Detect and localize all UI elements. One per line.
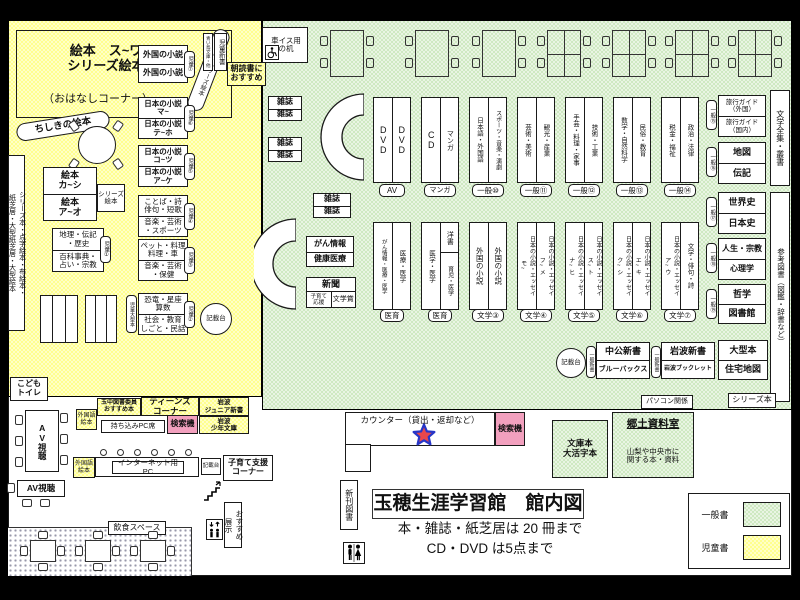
kamishibai-strip-shelf: シリーズ本・点字絵本・布絵本・ 紙芝居・大型紙芝居・大型絵本 xyxy=(8,155,25,331)
shinbun-label: 新聞 xyxy=(307,278,355,292)
shelf-tag: 文学⑥ xyxy=(616,309,648,322)
stool[interactable] xyxy=(100,449,107,456)
shelf-cell: 恐竜・星座 算数 xyxy=(139,294,187,314)
shelf-cell: 音楽・芸術 ・スポーツ xyxy=(139,216,187,236)
shelf-col: 数学・自然科学 xyxy=(614,98,632,182)
foreign-picture-books-shelf: 外国語 絵本 xyxy=(73,457,95,478)
internet-pc-label: インターネット用PC xyxy=(112,461,184,474)
ippan16-tag: 一般⑯ xyxy=(706,147,717,177)
jido1-tag: 児童① xyxy=(100,236,111,263)
shelf-col: 民俗・教育 xyxy=(632,98,651,182)
search-terminal[interactable]: 検索機 xyxy=(495,412,525,446)
iwanami-shinsho-shelf: 岩波新書 岩波ブックレット xyxy=(661,342,715,379)
osusume-display-shelf: おすすめ 展示 xyxy=(224,502,242,548)
ehon-shelf: 絵本 カ~シ 絵本 ア~オ xyxy=(43,167,97,221)
shelf-cell: 人生・宗教 xyxy=(719,239,765,259)
chiri-shelf: 地理・伝記 ・歴史 百科事典・ 占い・宗教 xyxy=(52,228,104,272)
stool[interactable] xyxy=(134,449,141,456)
reading-table xyxy=(738,30,772,77)
asadoku-osusume-shelf: 朝読書に おすすめ xyxy=(227,62,266,86)
eating-table xyxy=(85,540,111,562)
shelf-col: 日本の小説・エッセイ モ~ xyxy=(518,223,536,309)
foreign-picture-books-shelf: 外国語 絵本 xyxy=(76,409,97,430)
magazine-label: 雑誌 xyxy=(269,97,301,109)
legend-children-label: 児童書 xyxy=(697,541,733,555)
kids-round-table xyxy=(78,126,116,164)
jido5-shelf: 日本の小説 コ~ツ 日本の小説 ア~ケ xyxy=(138,145,188,187)
bungaku-zenshu-shelf: 文学全集・叢書 xyxy=(770,90,790,186)
chair[interactable] xyxy=(93,531,103,539)
jido3-shelf: ペット・料理 料理・車 音楽・芸術 ・保健 xyxy=(138,239,188,281)
chair[interactable] xyxy=(472,36,480,46)
chair[interactable] xyxy=(38,563,48,571)
internet-pc-counter[interactable]: インターネット用PC xyxy=(95,457,199,477)
shelf-cell: がん情報 xyxy=(307,237,353,252)
chuko-shinsho-shelf: 中公新書 ブルーバックス xyxy=(596,342,650,379)
library-floor-map: 絵本 ス~ワ シリーズ絵本 （おはなしコーナー） 昔話・シリーズ絵本 ちしきの絵… xyxy=(0,0,800,600)
travel-guide-shelf: 旅行ガイド （外国） 旅行ガイド （国内） xyxy=(718,95,766,137)
shelf-col: 技術・工業 xyxy=(584,98,603,182)
shelf-ippan10: 日本語・外国語 スポーツ・音楽・演劇 xyxy=(469,97,507,183)
jido4-shelf: ことば・詩 俳句・短歌 音楽・芸術 ・スポーツ xyxy=(138,195,188,237)
shelf-tag: マンガ xyxy=(424,184,456,197)
shelf-cell: 心理学 xyxy=(719,259,765,279)
shelf-col: 医学・医学 xyxy=(422,223,440,309)
chair[interactable] xyxy=(728,36,736,46)
series-bon-label: シリーズ本 xyxy=(728,393,776,408)
kyodo-room-note: 山梨や中央市に 関する本・資料 xyxy=(613,437,693,475)
curved-shelf xyxy=(320,93,364,181)
shinbun-shelf: 新聞 子育て 応援 文学賞 xyxy=(306,277,356,308)
shelf-col: マンガ xyxy=(440,98,459,182)
chair[interactable] xyxy=(60,413,68,423)
shelf-col: 洋書 xyxy=(441,223,459,253)
shelf-cell: 住宅地図 xyxy=(719,360,767,379)
chair[interactable] xyxy=(320,36,328,46)
shelf-col: がん情報・医療・医学 xyxy=(374,223,392,309)
ippan18-tag: 一般⑱ xyxy=(706,243,717,273)
shelf-col: 日本の小説・エッセイ ナ~ヒ xyxy=(566,223,584,309)
teens-corner: ティーンズ コーナー xyxy=(141,397,199,416)
magazine-label: 雑誌 xyxy=(269,138,301,150)
chair[interactable] xyxy=(112,546,120,556)
shelf-ippan11: 芸術・美術 観光・産業 xyxy=(517,97,555,183)
chair[interactable] xyxy=(22,499,32,507)
shelf-cell: 旅行ガイド （外国） xyxy=(719,96,765,116)
shelf-col: 日本の小説・エッセイ ア~ウ xyxy=(662,223,680,309)
shelf-tag: 一般⑭ xyxy=(664,184,696,197)
chair[interactable] xyxy=(648,36,656,46)
jido5-tag: 児童⑤ xyxy=(184,153,195,180)
legend: 一般書 児童書 xyxy=(688,493,790,569)
magazine-rack: 雑誌 雑誌 xyxy=(268,137,302,162)
iwanami-junior-shinsho-shelf: 岩波 ジュニア新書 xyxy=(199,397,249,416)
chair[interactable] xyxy=(665,58,673,68)
shelf-col: スポーツ・音楽・演劇 xyxy=(488,98,507,182)
jido2-tag: 児童② xyxy=(184,301,195,328)
shelf-col: 育児・医学 xyxy=(441,253,459,309)
shelf-col: 税金・福祉 xyxy=(662,98,680,182)
chair[interactable] xyxy=(774,58,782,68)
ippan15-tag: 一般⑮ xyxy=(706,100,717,130)
shelf-cell: 音楽・芸術 ・保健 xyxy=(139,260,187,280)
chair[interactable] xyxy=(7,483,15,493)
shelf-cell: 日本の小説 ア~ケ xyxy=(139,166,187,186)
chair[interactable] xyxy=(451,58,459,68)
magazine-label: 雑誌 xyxy=(314,194,350,206)
chair[interactable] xyxy=(366,36,374,46)
chair[interactable] xyxy=(472,58,480,68)
shelf-bungaku6: 日本の小説・エッセイ ク~シ 日本の小説・エッセイ エ~キ xyxy=(613,222,651,310)
chair[interactable] xyxy=(60,434,68,444)
wheelchair-desk: 車イス用 の机 xyxy=(262,27,308,63)
shelf-ippan14: 税金・福祉 政治・法律 xyxy=(661,97,699,183)
you-are-here-star-icon xyxy=(412,423,436,447)
chair[interactable] xyxy=(405,58,413,68)
shelf-cell: 地図 xyxy=(719,143,765,163)
chair[interactable] xyxy=(711,58,719,68)
shelf-cell: 岩波ブックレット xyxy=(662,361,714,378)
shelf-tag: 文学⑤ xyxy=(568,309,600,322)
shelf-cell: ことば・詩 俳句・短歌 xyxy=(139,196,187,216)
kisaidai-stand: 記載台 xyxy=(200,303,232,335)
shelf-cell: 世界史 xyxy=(719,193,765,213)
shelf-col: 日本語・外国語 xyxy=(470,98,488,182)
chair[interactable] xyxy=(15,415,23,425)
shelf-col: 日本の小説・エッセイ ス~ト xyxy=(584,223,603,309)
shelf-cell: ペット・料理 料理・車 xyxy=(139,240,187,260)
shelf-bungaku7: 日本の小説・エッセイ ア~ウ 文学・俳句・詩 xyxy=(661,222,699,310)
bungakusho-cell: 文学賞 xyxy=(331,292,356,308)
shelf-tag: 医育 xyxy=(428,309,452,322)
chair[interactable] xyxy=(20,546,28,556)
curved-shelf xyxy=(254,218,296,310)
shelf-col: DVD xyxy=(374,98,392,182)
shelf-tag: AV xyxy=(379,184,405,197)
series-ehon-side-shelf: シリーズ 絵本 xyxy=(97,184,125,212)
magazine-rack: 雑誌 雑誌 xyxy=(313,193,351,218)
chair[interactable] xyxy=(75,546,83,556)
gan-joho-shelf: がん情報 健康医療 xyxy=(306,236,354,267)
tamachu-osusume-shelf: 玉中図書委員 おすすめ本 xyxy=(97,398,141,416)
shelf-cell: 外国の小説 xyxy=(139,46,187,64)
restroom-icon xyxy=(343,542,365,564)
shelf-cell: 日本の小説 マ~ xyxy=(139,98,187,118)
pasokon-kankei-label: パソコン関係 xyxy=(641,395,693,409)
kids-toilet-label: こども トイレ xyxy=(10,377,48,401)
sanko-tosho-shelf: 参考図書（図鑑・辞書など） xyxy=(770,192,790,402)
chair[interactable] xyxy=(602,36,610,46)
shelf-col: CD xyxy=(422,98,440,182)
shelf-tag: 一般⑬ xyxy=(616,184,648,197)
shelf-tag: 一般⑫ xyxy=(568,184,600,197)
kisaidai-stand: 記載台 xyxy=(201,458,221,475)
shelf-cell: 日本史 xyxy=(719,213,765,233)
chair[interactable] xyxy=(583,58,591,68)
magazine-label: 雑誌 xyxy=(269,150,301,162)
ehon-shelf-bottom: 絵本 ア~オ xyxy=(44,194,96,220)
chair[interactable] xyxy=(518,36,526,46)
chair[interactable] xyxy=(148,531,158,539)
jido-ogata-tag: 児童大型本 xyxy=(126,295,137,333)
loan-limit-note: 本・雑誌・紙芝居は 20 冊まで xyxy=(375,520,605,537)
kids-stack xyxy=(85,295,117,343)
chair[interactable] xyxy=(537,58,545,68)
shelf-col: 医療・医学 xyxy=(392,223,411,309)
shelf-col: 外国の小説 xyxy=(488,223,507,309)
stool[interactable] xyxy=(168,449,175,456)
kids-stack xyxy=(40,295,78,343)
bunko-daikatsuji-room: 文庫本 大活字本 xyxy=(552,420,608,478)
shelf-ippan12: 手芸・料理・家事 技術・工業 xyxy=(565,97,603,183)
chair[interactable] xyxy=(38,531,48,539)
ippan-shinsho-tag: 一般新書 xyxy=(586,346,596,378)
chiri-shelf-bottom: 百科事典・ 占い・宗教 xyxy=(53,250,103,271)
shelf-col: 観光・産業 xyxy=(536,98,555,182)
kosodate-support-corner: 子育て支援 コーナー xyxy=(223,455,273,481)
reading-table xyxy=(482,30,516,77)
page-title: 玉穂生涯学習館 館内図 xyxy=(372,489,584,519)
jinsei-shelf: 人生・宗教 心理学 xyxy=(718,238,766,280)
search-terminal[interactable]: 検索機 xyxy=(167,415,198,434)
stool[interactable] xyxy=(151,449,158,456)
jido-shinsho-shelf: 児童新書 xyxy=(214,33,227,71)
chair[interactable] xyxy=(451,36,459,46)
shelf-av: DVD DVD xyxy=(373,97,411,183)
av-viewing-table: AV視聴 xyxy=(25,410,59,472)
chair[interactable] xyxy=(665,36,673,46)
reading-table xyxy=(612,30,646,77)
chair[interactable] xyxy=(130,546,138,556)
stool[interactable] xyxy=(117,449,124,456)
chair[interactable] xyxy=(60,455,68,465)
shelf-tag: 文学③ xyxy=(472,309,504,322)
legend-children-swatch xyxy=(743,535,781,560)
magazine-rack: 雑誌 雑誌 xyxy=(268,96,302,121)
chair[interactable] xyxy=(93,563,103,571)
chair[interactable] xyxy=(602,58,610,68)
ogata-bon-shelf: 大型本 住宅地図 xyxy=(718,340,768,380)
shelf-bungaku5: 日本の小説・エッセイ ナ~ヒ 日本の小説・エッセイ ス~ト xyxy=(565,222,603,310)
iwanami-shonen-bunko-shelf: 岩波 少年文庫 xyxy=(199,416,249,434)
shelf-cell: 大型本 xyxy=(719,341,767,360)
shelf-col: 日本の小説・エッセイ ク~シ xyxy=(614,223,632,309)
chair[interactable] xyxy=(518,58,526,68)
shelf-cell: 外国の小説 xyxy=(139,64,187,82)
reading-table xyxy=(330,30,364,77)
shelf-col: 日本の小説・エッセイ フ~メ xyxy=(536,223,555,309)
elevator-icon[interactable] xyxy=(206,519,223,540)
shelf-cell: 哲学 xyxy=(719,285,765,304)
shelf-cell: 日本の小説 テ~ホ xyxy=(139,118,187,138)
chair[interactable] xyxy=(711,36,719,46)
shelf-tag: 一般⑩ xyxy=(472,184,504,197)
shelf-iiku1: がん情報・医療・医学 医療・医学 xyxy=(373,222,411,310)
shelf-cell: 日本の小説 コ~ツ xyxy=(139,146,187,166)
kisaidai-stand: 記載台 xyxy=(556,348,586,378)
counter-leg xyxy=(345,444,371,472)
kyodo-room-title: 郷土資料室 xyxy=(613,413,693,437)
eating-table xyxy=(30,540,56,562)
shelf-cell: 伝記 xyxy=(719,163,765,183)
av-limit-note: CD・DVD は5点まで xyxy=(375,540,605,557)
shelf-bungaku3: 外国の小説 外国の小説 xyxy=(469,222,507,310)
shelf-manga: CD マンガ xyxy=(421,97,459,183)
chiri-shelf-top: 地理・伝記 ・歴史 xyxy=(53,229,103,250)
ehon-shelf-top: 絵本 カ~シ xyxy=(44,168,96,194)
chair[interactable] xyxy=(366,58,374,68)
shelf-cell: 健康医療 xyxy=(307,252,353,267)
history-shelf: 世界史 日本史 xyxy=(718,192,766,234)
kosodate-ouen-cell: 子育て 応援 xyxy=(307,292,331,308)
jido2-shelf: 恐竜・星座 算数 社会・教育 しごと・民話 xyxy=(138,293,188,335)
shinkan-tosho-shelf: 新刊図書 xyxy=(340,480,358,530)
shelf-tag: 文学④ xyxy=(520,309,552,322)
shelf-cell: 岩波新書 xyxy=(662,343,714,361)
stool[interactable] xyxy=(185,449,192,456)
shelf-cell: 旅行ガイド （国内） xyxy=(719,116,765,136)
shelf-cell: 図書館 xyxy=(719,304,765,323)
av-viewing-booth: AV視聴 xyxy=(17,480,65,497)
shelf-iiku2: 医学・医学 洋書 育児・医学 xyxy=(421,222,459,310)
shelf-col: 文学・俳句・詩 xyxy=(680,223,699,309)
shelf-tag: 一般⑪ xyxy=(520,184,552,197)
tetsugaku-shelf: 哲学 図書館 xyxy=(718,284,766,324)
shelf-cell: 中公新書 xyxy=(597,343,649,361)
shelf-ippan13: 数学・自然科学 民俗・教育 xyxy=(613,97,651,183)
jido7-shelf: 外国の小説 外国の小説 xyxy=(138,45,188,83)
chair[interactable] xyxy=(148,563,158,571)
chair[interactable] xyxy=(15,457,23,467)
wheelchair-icon xyxy=(265,45,279,60)
shelf-col: 日本の小説・エッセイ エ~キ xyxy=(632,223,651,309)
shelf-bungaku4: 日本の小説・エッセイ モ~ 日本の小説・エッセイ フ~メ xyxy=(517,222,555,310)
chair[interactable] xyxy=(405,36,413,46)
shelf-cell: ブルーバックス xyxy=(597,361,649,378)
chair[interactable] xyxy=(40,499,50,507)
legend-general-label: 一般書 xyxy=(697,508,733,522)
jido3-tag: 児童③ xyxy=(184,247,195,274)
shelf-cell: 社会・教育 しごと・民話 xyxy=(139,314,187,334)
counter[interactable]: カウンター（貸出・返却など） xyxy=(345,412,495,446)
reading-table xyxy=(415,30,449,77)
chair[interactable] xyxy=(583,36,591,46)
jido7-tag: 児童⑦ xyxy=(184,51,195,78)
map-denki-shelf: 地図 伝記 xyxy=(718,142,766,184)
chair[interactable] xyxy=(57,546,65,556)
magazine-label: 雑誌 xyxy=(269,109,301,121)
ippan19-tag: 一般⑲ xyxy=(706,289,717,319)
shelf-col: DVD xyxy=(392,98,411,182)
shelf-col: 芸術・美術 xyxy=(518,98,536,182)
kyodo-shiryo-room: 郷土資料室 山梨や中央市に 関する本・資料 xyxy=(612,412,694,478)
chair[interactable] xyxy=(167,546,175,556)
shelf-col: 政治・法律 xyxy=(680,98,699,182)
shelf-tag: 文学⑦ xyxy=(664,309,696,322)
aoitori-bunko-shelf: 青い鳥文庫・他 xyxy=(203,33,213,71)
stairs-icon xyxy=(202,480,224,502)
jido6-shelf: 日本の小説 マ~ 日本の小説 テ~ホ xyxy=(138,97,188,139)
chair[interactable] xyxy=(728,58,736,68)
jido4-tag: 児童④ xyxy=(184,203,195,230)
shelf-col: 手芸・料理・家事 xyxy=(566,98,584,182)
chair[interactable] xyxy=(320,58,328,68)
byod-pc-seats[interactable]: 持ち込みPC席 xyxy=(101,420,165,433)
ippan-shinsho-tag: 一般新書 xyxy=(651,346,661,378)
jido6-tag: 児童⑥ xyxy=(184,105,195,132)
ippan17-tag: 一般⑰ xyxy=(706,197,717,227)
legend-general-swatch xyxy=(743,502,781,527)
chair[interactable] xyxy=(537,36,545,46)
chair[interactable] xyxy=(648,58,656,68)
chair[interactable] xyxy=(15,436,23,446)
shelf-col: 外国の小説 xyxy=(470,223,488,309)
reading-table xyxy=(547,30,581,77)
reading-table xyxy=(675,30,709,77)
magazine-label: 雑誌 xyxy=(314,206,350,218)
chair[interactable] xyxy=(774,36,782,46)
eating-table xyxy=(140,540,166,562)
shelf-tag: 医育 xyxy=(380,309,404,322)
